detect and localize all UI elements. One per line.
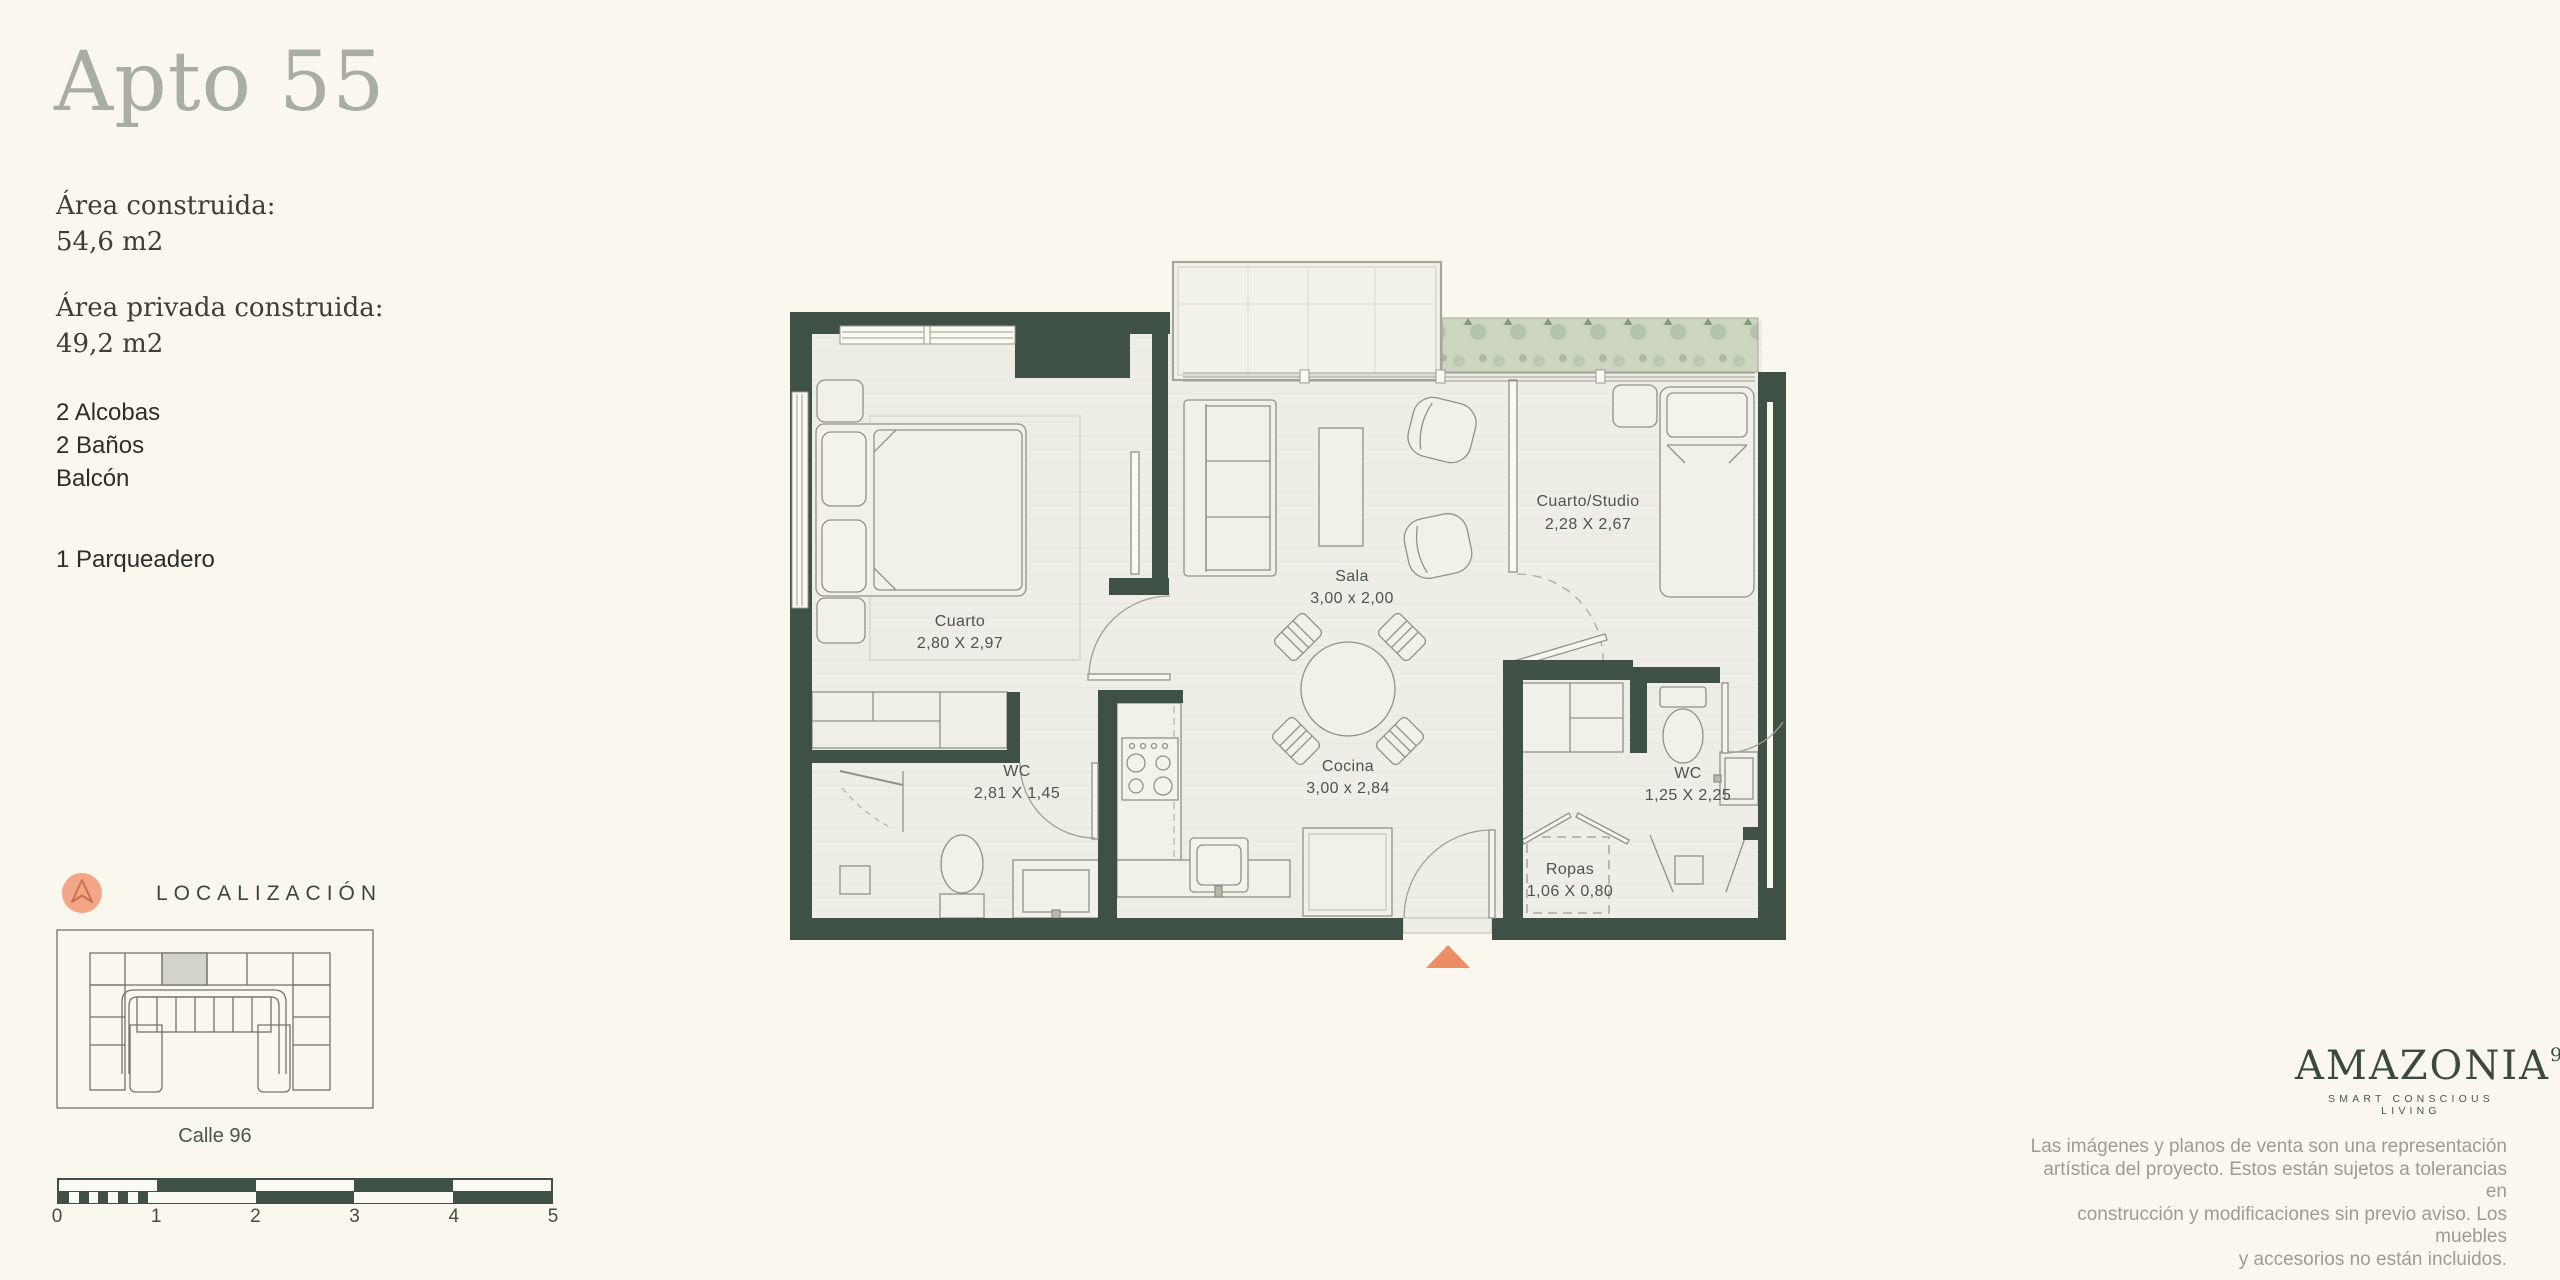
closet-mirror <box>1131 452 1139 574</box>
room-cuarto-name: Cuarto <box>935 613 985 630</box>
floor-plan: Cuarto 2,80 X 2,97 Sala 3,00 x 2,00 Cuar… <box>770 240 1800 1000</box>
localization-map: Calle 96 <box>55 928 375 1148</box>
room-wc1-dims: 2,81 X 1,45 <box>974 785 1060 802</box>
building-left-wing <box>90 985 125 1090</box>
brand-tagline: SMART CONSCIOUS LIVING <box>2295 1093 2527 1117</box>
brand-superscript: 96 <box>2550 1044 2560 1066</box>
disclaimer-line: construcción y modificaciones sin previo… <box>2027 1204 2507 1249</box>
dining-table <box>1301 642 1395 736</box>
fridge <box>1303 828 1392 916</box>
page-title: Apto 55 <box>54 40 385 126</box>
disclaimer-line: Las imágenes y planos de venta son una r… <box>2027 1136 2507 1159</box>
kitchen-sink <box>1190 838 1248 897</box>
room-sala-dims: 3,00 x 2,00 <box>1310 590 1394 607</box>
nightstand <box>817 598 865 643</box>
room-studio-name: Cuarto/Studio <box>1536 493 1639 510</box>
planter-strip <box>1442 318 1758 372</box>
nightstand <box>1613 385 1657 427</box>
wardrobe <box>812 692 1007 748</box>
room-wc2-dims: 1,25 X 2,25 <box>1645 787 1731 804</box>
balcony <box>1173 262 1441 380</box>
side-window <box>792 392 808 608</box>
brand-name: AMAZONIA96 <box>2295 1044 2527 1088</box>
corridor-inner <box>129 997 279 1074</box>
room-cocina-name: Cocina <box>1322 758 1374 775</box>
disclaimer: Las imágenes y planos de venta son una r… <box>2027 1136 2507 1271</box>
area-private: Área privada construida: 49,2 m2 <box>56 290 384 362</box>
room-ropas-name: Ropas <box>1546 861 1594 878</box>
scale-bar-ticks: 0 1 2 3 4 5 <box>57 1206 553 1230</box>
brand-logo: AMAZONIA96 SMART CONSCIOUS LIVING <box>2295 1044 2527 1117</box>
entry-threshold <box>1403 918 1492 933</box>
map-frame <box>57 930 373 1108</box>
hall-cabinet <box>1520 683 1623 752</box>
room-studio-dims: 2,28 X 2,67 <box>1545 516 1631 533</box>
building-top-row <box>90 953 330 985</box>
feature-banos: 2 Baños <box>56 429 160 462</box>
localization-heading: LOCALIZACIÓN <box>156 882 382 906</box>
room-wc1-name: WC <box>1003 763 1030 780</box>
tick-1: 1 <box>151 1206 162 1228</box>
scale-bar-top-row <box>59 1180 551 1191</box>
building-right-wing <box>293 985 330 1090</box>
room-sala-name: Sala <box>1335 568 1369 585</box>
compass-circle <box>62 873 102 913</box>
feature-balcon: Balcón <box>56 462 160 495</box>
sofa <box>1184 400 1276 576</box>
brochure-page: Apto 55 Área construida: 54,6 m2 Área pr… <box>0 0 2560 1280</box>
entry-arrow-icon <box>1426 945 1470 968</box>
nightstand <box>817 380 863 422</box>
room-cuarto-dims: 2,80 X 2,97 <box>917 635 1003 652</box>
tick-5: 5 <box>548 1206 559 1228</box>
disclaimer-line: y accesorios no están incluidos. <box>2027 1249 2507 1272</box>
disclaimer-line: artística del proyecto. Estos están suje… <box>2027 1159 2507 1204</box>
feature-list: 2 Alcobas 2 Baños Balcón <box>56 396 160 495</box>
tick-0: 0 <box>52 1206 63 1228</box>
stove <box>1122 738 1178 800</box>
studio-partition <box>1509 380 1517 572</box>
north-compass-icon <box>60 871 104 915</box>
highlighted-unit <box>162 953 207 985</box>
area-built-value: 54,6 m2 <box>56 224 276 260</box>
room-ropas-dims: 1,06 X 0,80 <box>1527 883 1613 900</box>
wall-channel <box>1767 402 1773 888</box>
feature-parqueadero: 1 Parqueadero <box>56 546 215 574</box>
building-right-tower <box>258 1025 290 1092</box>
single-bed <box>1660 387 1754 597</box>
area-built: Área construida: 54,6 m2 <box>56 188 276 260</box>
scale-bar <box>57 1178 553 1204</box>
street-label: Calle 96 <box>178 1125 251 1147</box>
room-wc2-name: WC <box>1674 765 1701 782</box>
tick-2: 2 <box>250 1206 261 1228</box>
coffee-table <box>1319 428 1363 546</box>
brand-wordmark: AMAZONIA <box>2295 1043 2550 1089</box>
scale-bar-bottom-row <box>59 1191 551 1203</box>
double-bed <box>816 424 1026 596</box>
tick-4: 4 <box>449 1206 460 1228</box>
building-left-tower <box>130 1025 162 1092</box>
area-private-value: 49,2 m2 <box>56 326 384 362</box>
bedroom-window <box>840 326 1015 344</box>
tick-3: 3 <box>349 1206 360 1228</box>
area-built-label: Área construida: <box>56 188 276 224</box>
feature-alcobas: 2 Alcobas <box>56 396 160 429</box>
area-private-label: Área privada construida: <box>56 290 384 326</box>
room-cocina-dims: 3,00 x 2,84 <box>1306 780 1390 797</box>
